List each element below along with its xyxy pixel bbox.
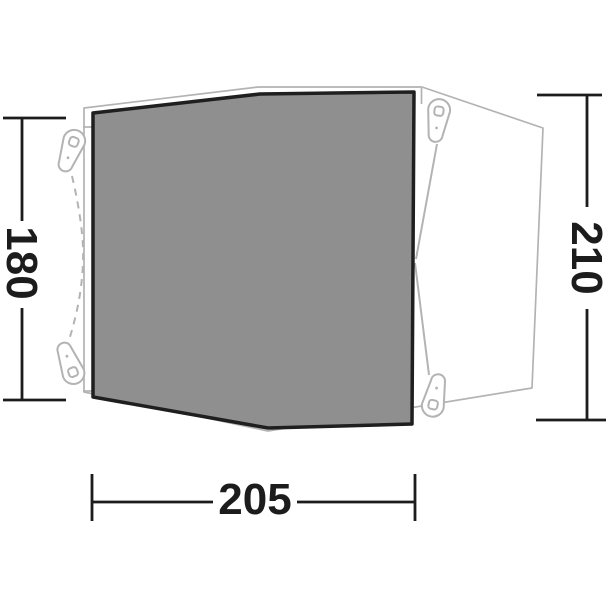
dimension-label-right-height: 210 (564, 208, 608, 308)
groundsheet-floor (93, 92, 414, 428)
guyline-attachment-icon-bottom-left (52, 339, 88, 387)
footprint-dimension-diagram: 180 210 205 (0, 0, 613, 613)
dimension-label-bottom-width: 205 (195, 478, 315, 522)
guyline-dashed-left (68, 176, 83, 343)
dimension-label-left-height: 180 (0, 213, 43, 313)
guyline-attachment-icon-top-left (53, 127, 88, 175)
